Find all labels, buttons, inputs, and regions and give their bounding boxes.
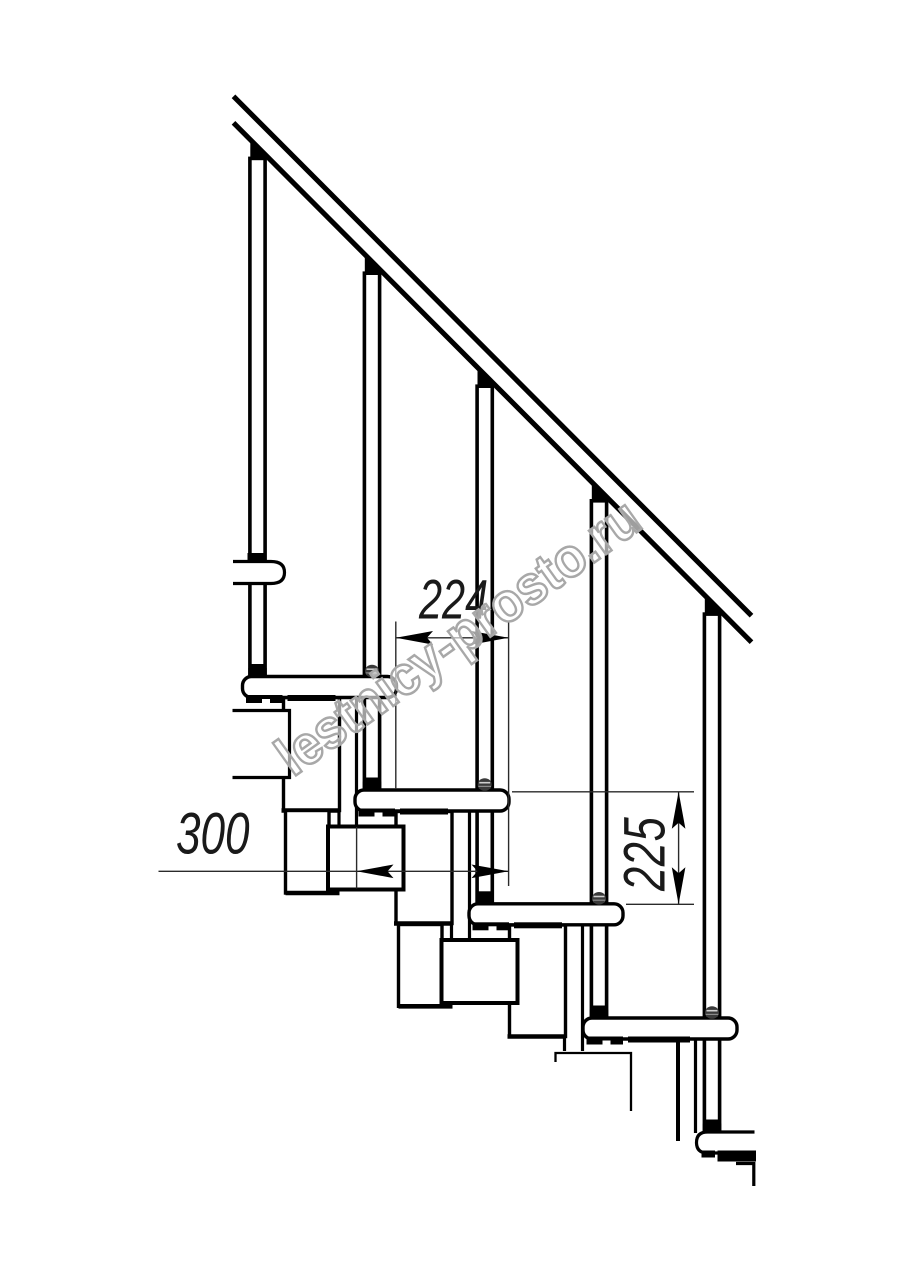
svg-text:225: 225: [612, 817, 676, 892]
svg-text:300: 300: [176, 801, 250, 866]
